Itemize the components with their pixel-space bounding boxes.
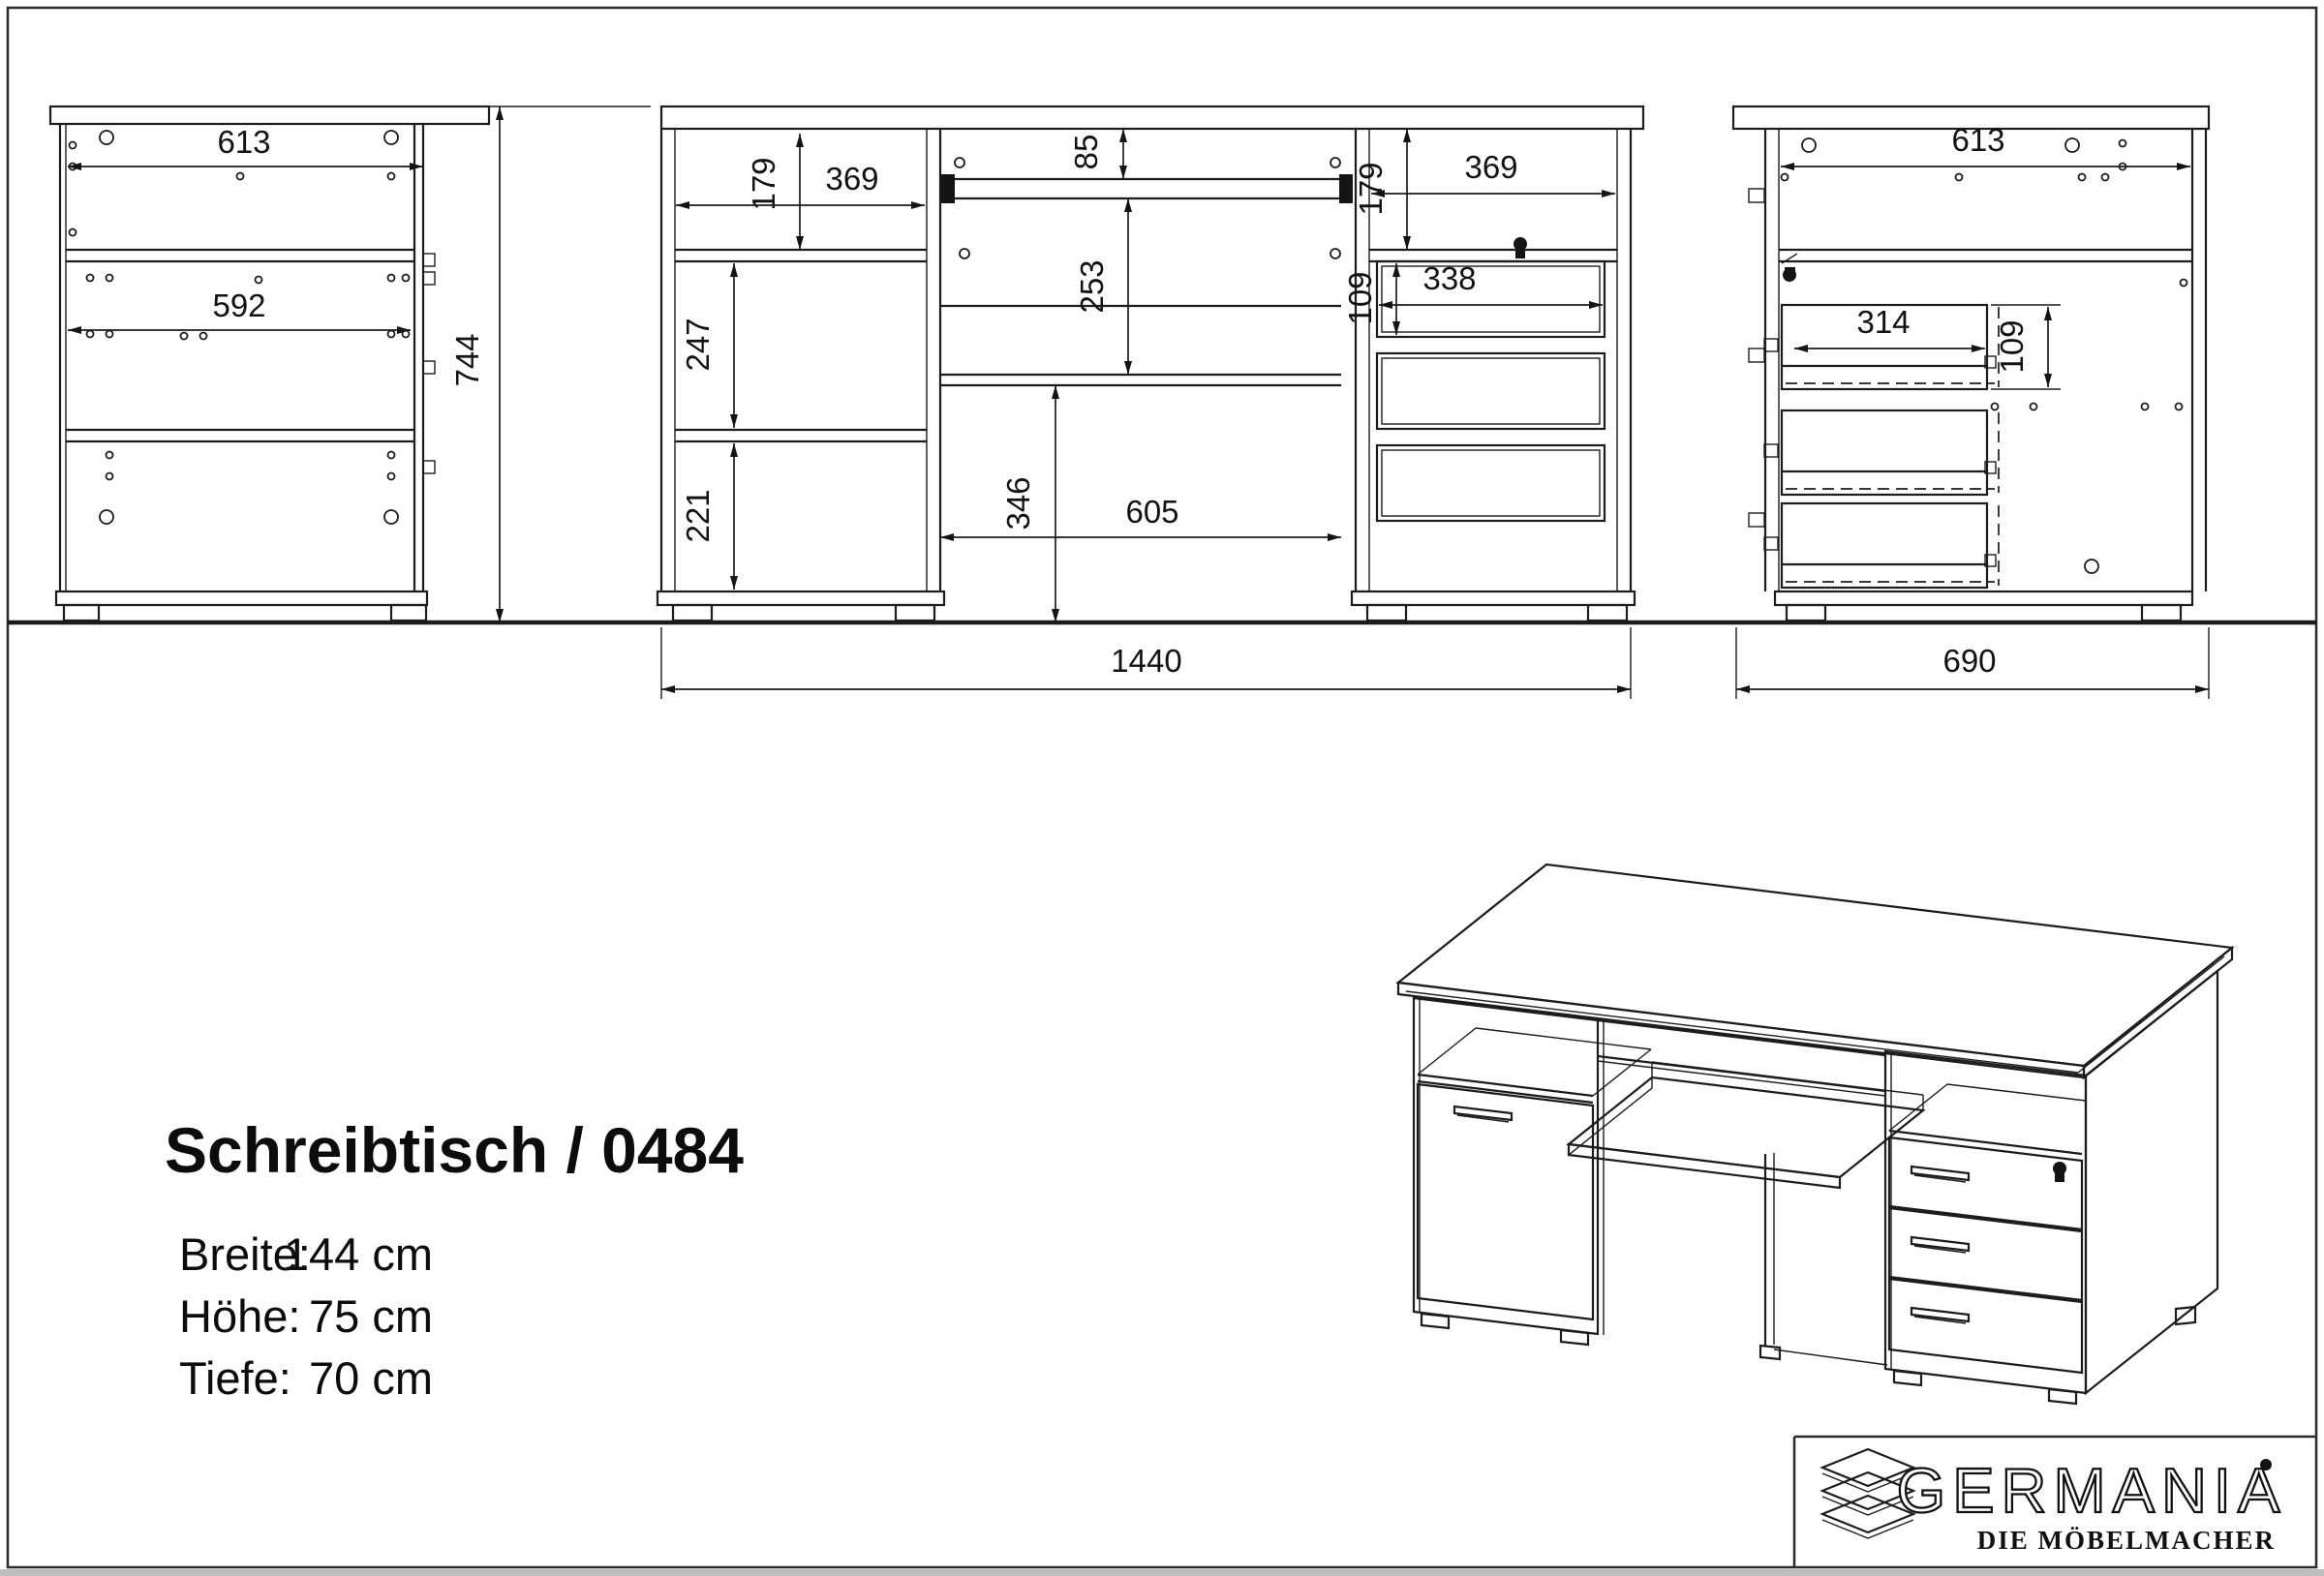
left-side-view: 613 592 744 [50,106,651,622]
spec-value: 75 cm [179,1289,433,1343]
svg-text:690: 690 [1942,643,1996,679]
right-side-panel [2086,971,2217,1393]
svg-text:346: 346 [1000,476,1036,530]
drawer-front [1377,353,1605,429]
tray-rail-cap [941,174,955,203]
drawer-3d [1889,1208,2082,1300]
perspective-view [1398,864,2232,1404]
foot [1588,605,1627,621]
svg-text:613: 613 [1951,122,2004,158]
svg-text:85: 85 [1068,135,1104,170]
right-pedestal [1885,1051,2086,1393]
svg-text:109: 109 [1342,271,1378,324]
foot [1787,605,1825,621]
svg-text:179: 179 [746,157,781,210]
lock-icon [1514,237,1527,258]
dimension-613-left-view: 613 [68,124,423,167]
dimension-179-right: 179 [1353,129,1407,250]
dimension-690-total-depth: 690 [1736,627,2209,699]
left-pedestal [1414,998,1598,1334]
svg-text:314: 314 [1856,304,1910,340]
foot [2142,605,2181,621]
svg-text:605: 605 [1125,494,1178,530]
left-view-plinth [56,591,427,605]
svg-text:221: 221 [680,489,716,542]
foot [1894,1371,1921,1385]
foot [896,605,934,621]
left-view-top-board [50,106,489,124]
drawing-page: 613 592 744 [0,0,2324,1576]
dimension-109-front: 109 [1342,263,1396,335]
dimension-109-side: 109 [1991,305,2061,389]
door-handle [1454,1106,1512,1122]
dimension-221: 221 [680,443,734,590]
logo-brand-text: GERMANIA [1897,1455,2287,1526]
dimension-346: 346 [1000,385,1055,622]
svg-text:247: 247 [680,318,716,371]
svg-text:253: 253 [1074,259,1110,313]
spec-value: 144 cm [179,1227,433,1281]
dimension-744-height: 744 [449,106,651,622]
drawer-side-profile [1764,503,1999,588]
dimension-247: 247 [680,263,734,428]
cabinet-door [1418,1084,1593,1319]
dimension-179-left: 179 [746,134,800,250]
foot [2049,1389,2076,1404]
dim-label: 613 [217,124,270,160]
foot [1367,605,1406,621]
svg-text:369: 369 [1464,149,1517,185]
germania-logo: GERMANIA DIE MÖBELMACHER [1822,1449,2286,1555]
right-side-view: 613 314 109 690 [1733,106,2209,699]
drawer-front [1377,445,1605,521]
svg-text:338: 338 [1422,260,1476,296]
dim-label: 592 [212,288,265,323]
foot [391,605,426,621]
drawer-side-profile [1764,410,1999,495]
drawer-3d [1889,1279,2082,1373]
keyboard-tray [1569,1062,1923,1188]
desktop-top [1398,864,2232,1066]
dimension-85: 85 [1068,129,1123,179]
foot [64,605,99,621]
product-title: Schreibtisch / 0484 [165,1113,744,1187]
spec-value: 70 cm [179,1351,433,1405]
front-view-top-board [661,106,1643,129]
foot [673,605,712,621]
svg-text:369: 369 [825,161,878,197]
dimension-253: 253 [1074,198,1128,375]
dimension-314: 314 [1794,304,1985,349]
foot [1422,1314,1449,1328]
tray-rail-cap [1339,174,1353,203]
svg-text:179: 179 [1353,162,1389,215]
dimension-592-left-view: 592 [68,288,411,330]
logo-tagline-text: DIE MÖBELMACHER [1977,1526,2276,1555]
svg-text:1440: 1440 [1111,643,1181,679]
front-view: 179 369 247 221 85 253 346 605 [657,106,1643,699]
registered-dot [2260,1459,2272,1470]
lock-mechanism [1782,254,1797,282]
svg-text:109: 109 [1994,319,2030,373]
center-support [1760,1153,1887,1365]
dimension-338: 338 [1379,260,1603,305]
dim-label: 744 [449,333,485,386]
drawer-front [1377,261,1605,337]
foot [1561,1330,1588,1345]
dimension-1440-total-width: 1440 [661,627,1631,699]
